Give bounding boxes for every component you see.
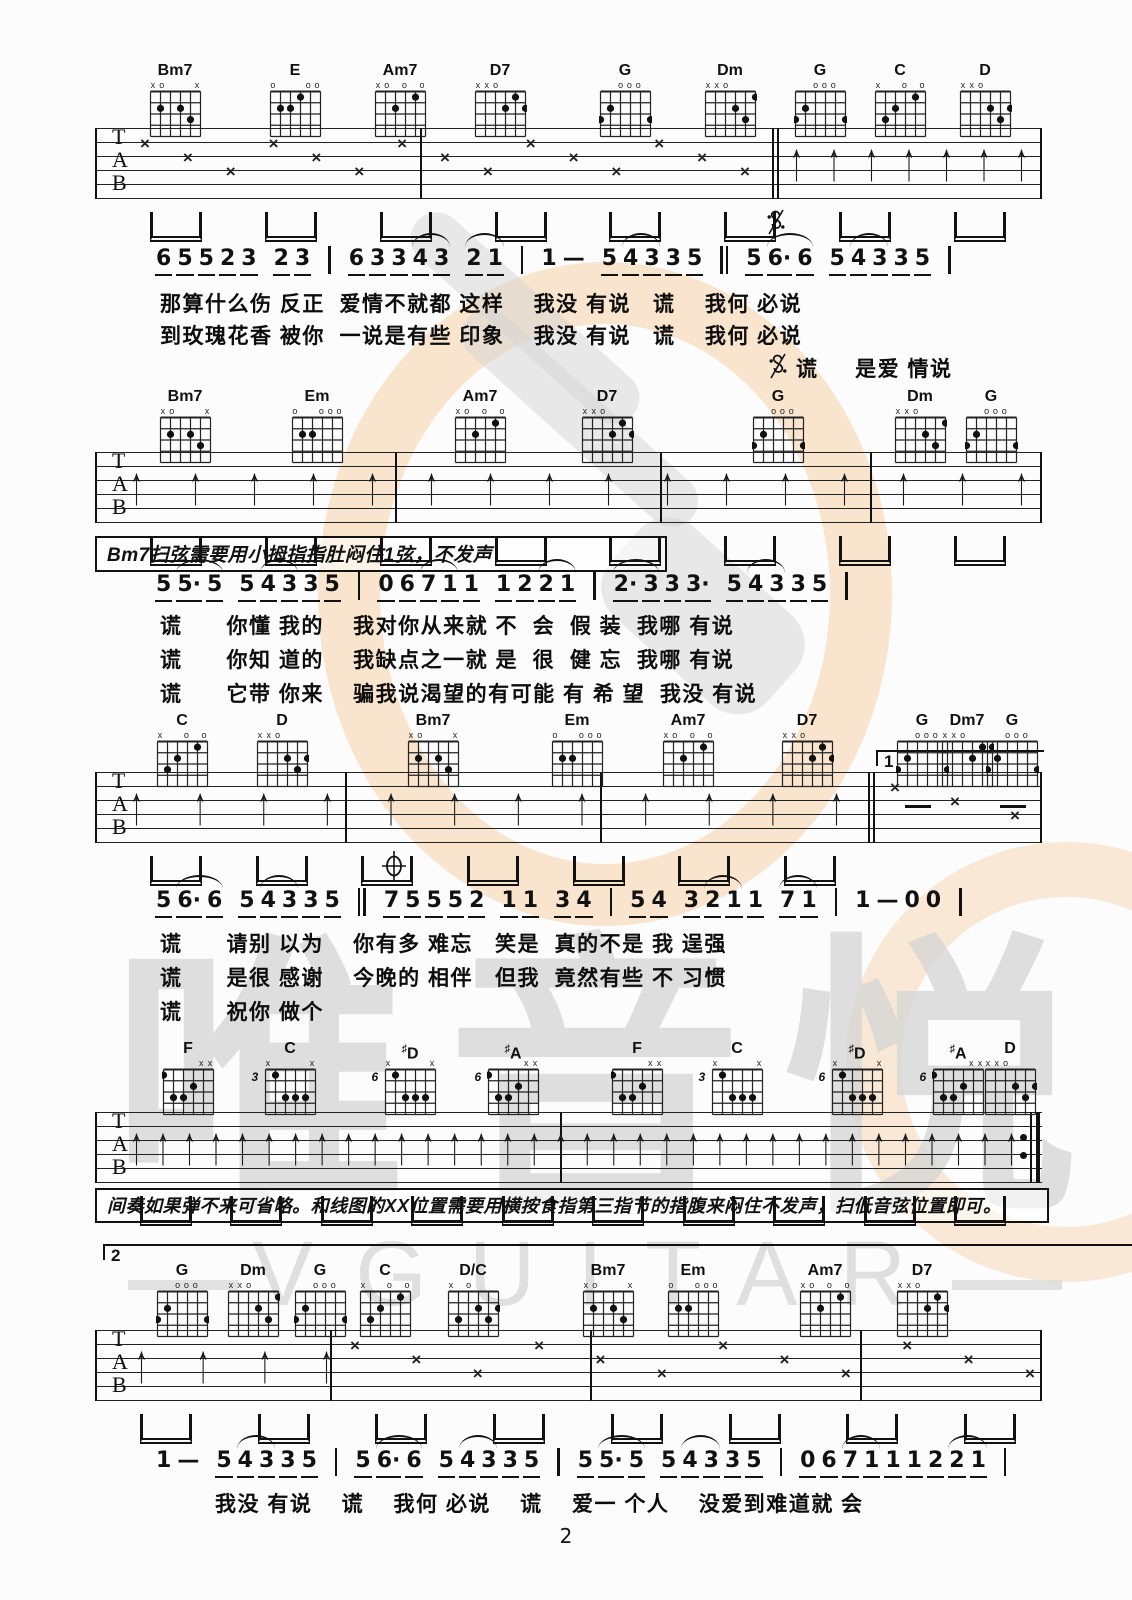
half-rest-dash <box>905 805 931 808</box>
jianpu-note: 2· <box>613 572 639 602</box>
chord-grid <box>447 1290 500 1343</box>
mute-marker: x <box>156 730 165 740</box>
chord-diagram-Bm7: Bm7xox <box>400 712 466 793</box>
chord-name: D <box>952 62 1018 80</box>
chord-name: Bm7 <box>142 62 208 80</box>
jianpu-beat-group: 65523 <box>155 246 258 276</box>
mute-marker: x <box>581 406 590 416</box>
jianpu-beat-group <box>843 572 850 600</box>
chord-open-mute-markers: xxo <box>959 80 1012 90</box>
rhythm-beam <box>140 1414 192 1444</box>
jianpu-beat-group: 34 <box>554 888 593 918</box>
mute-marker: x <box>197 1058 206 1068</box>
strum-up-arrow: ↑ <box>838 458 851 513</box>
no-marker <box>909 80 918 90</box>
chord-grid <box>149 90 202 143</box>
tie-slur-arc <box>681 1435 720 1449</box>
no-marker <box>1009 406 1018 416</box>
jianpu-note: 1 <box>441 572 458 602</box>
fret-position-label: 6 <box>819 1070 826 1084</box>
muted-note-x: × <box>740 162 750 182</box>
jianpu-note: 1 <box>540 246 557 272</box>
jianpu-note: 4 <box>260 572 277 602</box>
jianpu-beat-group <box>356 888 368 916</box>
open-marker: o <box>693 1280 702 1290</box>
no-marker <box>920 406 929 416</box>
no-marker <box>272 1058 281 1068</box>
no-marker <box>825 730 834 740</box>
jianpu-note: 1 <box>854 888 871 914</box>
no-marker <box>173 730 182 740</box>
no-marker <box>509 80 518 90</box>
open-marker: o <box>778 406 787 416</box>
muted-note-x: × <box>226 162 236 182</box>
jianpu-beat-group <box>957 888 964 916</box>
no-marker <box>471 406 480 416</box>
chord-name: G <box>979 712 1045 730</box>
jianpu-note: 5 <box>686 246 703 276</box>
mute-marker: x <box>967 1058 976 1068</box>
open-marker: o <box>634 80 643 90</box>
lyric-line: 谎 你知 道的 我缺点之一就 是 很 健 忘 我哪 有说 <box>160 644 734 674</box>
chord-grid <box>294 1290 347 1343</box>
jianpu-note: 5 <box>914 246 931 276</box>
chord-diagram-G: Gooo <box>745 388 811 469</box>
coda-icon <box>381 850 407 887</box>
jianpu-note: 6 <box>348 246 365 276</box>
barline-token <box>780 1448 783 1476</box>
jianpu-note: 5 <box>629 888 646 918</box>
no-marker <box>896 730 905 740</box>
jianpu-note: 3 <box>502 1448 519 1478</box>
open-marker: o <box>598 406 607 416</box>
chord-diagram-D-C: D/Cxo <box>440 1262 506 1343</box>
jianpu-note: 7 <box>779 888 796 918</box>
jianpu-beat-group: 54335 <box>215 1448 318 1478</box>
no-marker <box>184 80 193 90</box>
jianpu-beat-group: 54335 <box>601 246 704 276</box>
no-marker <box>940 1280 949 1290</box>
chord-name: Am7 <box>655 712 721 730</box>
jianpu-beat-group <box>946 246 953 274</box>
muted-note-x: × <box>611 162 621 182</box>
barline-token <box>845 572 848 600</box>
staff-letter-B: B <box>112 494 127 520</box>
no-marker <box>679 730 688 740</box>
no-marker <box>839 1058 848 1068</box>
open-marker: o <box>721 80 730 90</box>
chord-open-mute-markers: xox <box>582 1280 635 1290</box>
chord-grid <box>227 1290 280 1343</box>
chord-name: D7 <box>889 1262 955 1280</box>
mute-marker: x <box>712 80 721 90</box>
no-marker <box>807 730 816 740</box>
no-marker <box>967 730 976 740</box>
measure-barline <box>870 452 872 523</box>
mute-marker: x <box>799 1280 808 1290</box>
no-marker <box>200 1280 209 1290</box>
jianpu-note: 2 <box>465 246 482 276</box>
rhythm-beam <box>265 212 317 242</box>
chord-open-mute-markers: xooo <box>374 80 427 90</box>
chord-diagram-Am7: Am7xooo <box>367 62 433 143</box>
open-marker: o <box>273 730 282 740</box>
strum-up-arrow: ↑ <box>316 1118 329 1173</box>
jianpu-beat-group: 56·6 <box>745 246 813 276</box>
no-marker <box>958 1058 967 1068</box>
no-marker <box>949 1058 958 1068</box>
jianpu-note: 6 <box>796 246 813 276</box>
chord-grid <box>781 740 834 793</box>
chord-grid <box>611 1068 664 1121</box>
no-marker <box>424 730 433 740</box>
mute-marker: x <box>831 1058 840 1068</box>
open-marker: o <box>706 730 715 740</box>
no-marker <box>973 406 982 416</box>
strum-up-arrow: ↑ <box>130 1118 143 1173</box>
open-marker: o <box>400 80 409 90</box>
jianpu-beat-group: 2·333· <box>613 572 711 602</box>
jianpu-note: 1 <box>155 1448 172 1474</box>
no-marker <box>188 1058 197 1068</box>
no-marker <box>739 80 748 90</box>
muted-note-x: × <box>841 1364 851 1384</box>
jianpu-note: 3 <box>281 572 298 602</box>
jianpu-beat-group: 06711 <box>377 572 480 602</box>
mute-marker: x <box>264 1058 273 1068</box>
measure-barline <box>95 772 97 843</box>
chord-diagram-Bm7: Bm7xox <box>575 1262 641 1343</box>
no-marker <box>394 1280 403 1290</box>
strum-up-arrow: ↑ <box>369 1118 382 1173</box>
open-marker: o <box>991 406 1000 416</box>
jianpu-note: 5 <box>324 888 341 918</box>
jianpu-beat-group: 75552 <box>383 888 486 918</box>
chord-name: ♯A <box>480 1040 546 1058</box>
strum-up-arrow: ↑ <box>135 1336 148 1391</box>
strum-up-arrow: ↑ <box>740 1118 753 1173</box>
chord-diagram-D7: D7xxo <box>574 388 640 469</box>
no-marker <box>994 80 1003 90</box>
mute-marker: x <box>203 406 212 416</box>
chord-grid <box>162 1068 215 1121</box>
jianpu-note: 1 <box>863 1448 880 1478</box>
chord-diagram-D: Dxxo <box>952 62 1018 143</box>
no-marker <box>286 80 295 90</box>
strum-up-arrow: ↑ <box>872 1118 885 1173</box>
jianpu-note: — <box>176 1448 200 1474</box>
mute-marker: x <box>896 1280 905 1290</box>
jianpu-number-line: 1—5433556·65433555·554335067111221 <box>155 1448 1008 1482</box>
jianpu-note: 2 <box>538 572 555 602</box>
chord-diagram-C: Cxx3 <box>257 1040 323 1121</box>
staff-letter-B: B <box>112 1154 127 1180</box>
open-marker: o <box>1021 730 1030 740</box>
chord-diagram-A: ♯Axx6 <box>480 1040 546 1121</box>
open-marker: o <box>843 1280 852 1290</box>
open-marker: o <box>313 80 322 90</box>
chord-name: D7 <box>467 62 533 80</box>
no-marker <box>164 1280 173 1290</box>
mute-marker: x <box>193 80 202 90</box>
barline-token <box>835 888 838 916</box>
chord-name: G <box>787 62 853 80</box>
no-marker <box>290 1058 299 1068</box>
barline-token <box>358 572 361 600</box>
jianpu-note: 7 <box>420 572 437 602</box>
chord-name: Dm <box>887 388 953 406</box>
rhythm-beam <box>495 212 547 242</box>
open-marker: o <box>329 1280 338 1290</box>
no-marker <box>294 1280 303 1290</box>
strum-up-arrow: ↑ <box>425 458 438 513</box>
jianpu-beat-group <box>519 246 526 274</box>
open-marker: o <box>702 1280 711 1290</box>
jianpu-note: — <box>875 888 899 914</box>
jianpu-note: 1 <box>522 888 539 918</box>
jianpu-note: 2 <box>273 246 290 276</box>
jianpu-note: 2 <box>468 888 485 918</box>
jianpu-note: 0 <box>799 1448 816 1478</box>
no-marker <box>752 406 761 416</box>
jianpu-note: 1 <box>970 1448 987 1478</box>
mute-marker: x <box>149 80 158 90</box>
no-marker <box>487 1058 496 1068</box>
open-marker: o <box>958 730 967 740</box>
jianpu-note: 1 <box>559 572 576 602</box>
mute-marker: x <box>875 1058 884 1068</box>
chord-name: Dm <box>220 1262 286 1280</box>
chord-diagram-Em: Emoooo <box>544 712 610 793</box>
open-marker: o <box>616 80 625 90</box>
chord-diagram-D7: D7xxo <box>467 62 533 143</box>
open-marker: o <box>829 80 838 90</box>
no-marker <box>684 1280 693 1290</box>
no-marker <box>922 1280 931 1290</box>
barline-token <box>948 246 951 274</box>
mute-marker: x <box>967 80 976 90</box>
chord-grid <box>582 1290 635 1343</box>
jianpu-beat-group <box>778 1448 785 1476</box>
open-marker: o <box>491 80 500 90</box>
repeat-dot <box>1020 1152 1027 1159</box>
mute-marker: x <box>407 730 416 740</box>
chord-diagram-G: Gooo <box>149 1262 215 1343</box>
jianpu-beat-group: 54335 <box>726 572 829 602</box>
open-marker: o <box>976 80 985 90</box>
open-marker: o <box>769 406 778 416</box>
lyric-line: 那算什么伤 反正 爱情不就都 这样 我没 有说 谎 我何 必说 <box>160 288 802 318</box>
jianpu-beat-group: 3211 <box>683 888 764 918</box>
lyric-line: 谎 祝你 做个 <box>160 996 324 1026</box>
jianpu-note: 3 <box>642 572 659 602</box>
mute-marker: x <box>256 730 265 740</box>
no-marker <box>473 1280 482 1290</box>
rhythm-beam <box>321 1196 373 1226</box>
no-marker <box>176 406 185 416</box>
jianpu-note: 1 <box>500 888 517 918</box>
jianpu-note: 1 <box>463 572 480 602</box>
double-barline <box>777 128 779 199</box>
open-marker: o <box>913 730 922 740</box>
staff-letter-B: B <box>112 170 127 196</box>
no-marker <box>262 1280 271 1290</box>
rhythm-beam <box>954 212 1006 242</box>
chord-grid <box>599 90 652 143</box>
jianpu-note: 5 <box>829 246 846 276</box>
open-marker: o <box>670 730 679 740</box>
jianpu-note: 6 <box>405 1448 422 1478</box>
no-marker <box>675 1280 684 1290</box>
strum-up-arrow: ↑ <box>793 1118 806 1173</box>
chord-open-mute-markers: xx <box>162 1058 215 1068</box>
no-marker <box>401 1058 410 1068</box>
muted-note-x: × <box>569 148 579 168</box>
jianpu-note: 3 <box>258 1448 275 1478</box>
jianpu-beat-group: 21 <box>465 246 504 276</box>
jianpu-note: 5 <box>404 888 421 918</box>
no-marker <box>931 1280 940 1290</box>
strum-up-arrow: ↑ <box>978 1118 991 1173</box>
jianpu-note: 5 <box>577 1448 594 1478</box>
jianpu-note: 3 <box>554 888 571 918</box>
fret-position-label: 3 <box>699 1070 706 1084</box>
no-marker <box>513 1058 522 1068</box>
no-marker <box>504 1058 513 1068</box>
jianpu-note: 3 <box>665 246 682 276</box>
no-marker <box>271 1280 280 1290</box>
chord-name: D7 <box>574 388 640 406</box>
chord-open-mute-markers: xx <box>831 1058 884 1068</box>
jianpu-note: 5 <box>354 1448 371 1478</box>
strum-up-arrow: ↑ <box>263 1118 276 1173</box>
no-marker <box>760 406 769 416</box>
strum-up-arrow: ↑ <box>639 778 652 833</box>
mute-marker: x <box>874 80 883 90</box>
jianpu-note: 4 <box>850 246 867 276</box>
open-marker: o <box>1012 730 1021 740</box>
no-marker <box>794 80 803 90</box>
double-barline <box>873 772 875 843</box>
chord-name: C <box>352 1262 418 1280</box>
chord-diagram-D7: D7xxo <box>889 1262 955 1343</box>
rhythm-beam <box>729 1414 781 1444</box>
muted-note-x: × <box>595 1350 605 1370</box>
chord-name: ♯D <box>377 1040 443 1058</box>
jianpu-beat-group: 54335 <box>238 572 341 602</box>
segno-icon <box>768 352 788 386</box>
jianpu-note: 4 <box>459 1448 476 1478</box>
chord-grid <box>965 416 1018 469</box>
jianpu-note: 3 <box>871 246 888 276</box>
no-marker <box>929 406 938 416</box>
chord-name: Em <box>660 1262 726 1280</box>
chord-open-mute-markers: xooo <box>799 1280 852 1290</box>
jianpu-note: 3 <box>768 572 785 602</box>
strum-up-arrow: ↑ <box>197 1336 210 1391</box>
no-marker <box>170 1058 179 1068</box>
no-marker <box>857 1058 866 1068</box>
chord-name: C <box>704 1040 770 1058</box>
chord-name: Am7 <box>792 1262 858 1280</box>
chord-name: ♯D <box>824 1040 890 1058</box>
no-marker <box>282 730 291 740</box>
no-marker <box>737 1058 746 1068</box>
chord-diagram-Am7: Am7xooo <box>655 712 721 793</box>
chord-open-mute-markers: xxo <box>256 730 309 740</box>
chord-diagram-Bm7: Bm7xox <box>142 62 208 143</box>
muted-note-x: × <box>311 148 321 168</box>
no-marker <box>625 406 634 416</box>
chord-name: G <box>287 1262 353 1280</box>
muted-note-x: × <box>950 792 960 812</box>
jianpu-note: 5 <box>155 888 172 918</box>
jianpu-number-line: 655232363343211—5433556·654335 <box>155 246 953 280</box>
no-marker <box>838 80 847 90</box>
open-marker: o <box>157 80 166 90</box>
open-marker: o <box>688 730 697 740</box>
strum-up-arrow: ↑ <box>528 1118 541 1173</box>
strum-up-arrow: ↑ <box>130 458 143 513</box>
jianpu-number-line: 56·654335755521134543211711—00 <box>155 888 964 922</box>
no-marker <box>491 1280 500 1290</box>
jianpu-note: 1 <box>747 888 764 918</box>
chord-grid <box>752 416 805 469</box>
mute-marker: x <box>646 1058 655 1068</box>
strum-up-arrow: ↑ <box>554 1118 567 1173</box>
jianpu-note: 3 <box>279 1448 296 1478</box>
chord-name: F <box>155 1040 221 1058</box>
strum-up-arrow: ↑ <box>766 1118 779 1173</box>
staff-letter-B: B <box>112 814 127 840</box>
mute-marker: x <box>206 1058 215 1068</box>
strum-up-arrow: ↑ <box>448 1118 461 1173</box>
chord-open-mute-markers: xoo <box>874 80 927 90</box>
jianpu-note: 5 <box>523 1448 540 1478</box>
lyric-line: 我没 有说 谎 我何 必说 谎 爱一 个人 没爱到难道就 会 <box>215 1488 864 1518</box>
jianpu-note: 3 <box>724 1448 741 1478</box>
chord-diagram-D7: D7xxo <box>774 712 840 793</box>
jianpu-note: 6· <box>176 888 202 918</box>
no-marker <box>164 730 173 740</box>
lyric-line: 到玫瑰花香 被你 一说是有些 印象 我没 有说 谎 我何 必说 <box>160 320 802 350</box>
jianpu-note: 5 <box>660 1448 677 1478</box>
jianpu-note: 1 <box>800 888 817 918</box>
jianpu-beat-group: 54335 <box>829 246 932 276</box>
no-marker <box>719 1058 728 1068</box>
jianpu-note: 5 <box>215 1448 232 1478</box>
no-marker <box>495 1058 504 1068</box>
chord-open-mute-markers: xxo <box>894 406 947 416</box>
jianpu-note: 3 <box>302 572 319 602</box>
jianpu-note: 6 <box>206 888 223 918</box>
chord-diagram-Bm7: Bm7xox <box>152 388 218 469</box>
jianpu-beat-group: 63343 <box>348 246 451 276</box>
chord-name: C <box>149 712 215 730</box>
chord-name: Am7 <box>447 388 513 406</box>
open-marker: o <box>911 406 920 416</box>
jianpu-note: 0 <box>377 572 394 602</box>
chord-name: G <box>149 1262 215 1280</box>
no-marker <box>1003 80 1012 90</box>
jianpu-beat-group: 56·6 <box>155 888 223 918</box>
chord-open-mute-markers: xooo <box>662 730 715 740</box>
jianpu-note: 3· <box>685 572 711 602</box>
open-marker: o <box>304 80 313 90</box>
open-marker: o <box>385 1280 394 1290</box>
jianpu-beat-group: 55·5 <box>577 1448 645 1478</box>
no-marker <box>816 1280 825 1290</box>
